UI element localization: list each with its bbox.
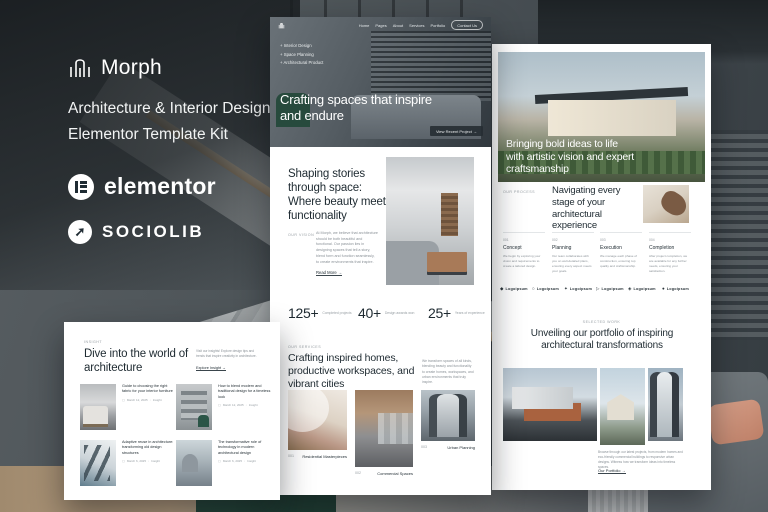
blog-section-mockup: Insight Dive into the world of architect… [64, 322, 280, 500]
vision-image-interior [386, 157, 474, 285]
kit-subtitle-line2: Elementor Template Kit [68, 122, 270, 148]
house-body-shape [548, 100, 676, 136]
portfolio-image-modern-house [503, 368, 597, 441]
nav-item-portfolio[interactable]: Portfolio [431, 23, 446, 28]
logoipsum-icon: ○ [532, 286, 535, 291]
stat-value: 25+ [428, 305, 451, 321]
services-label: Our Services [288, 345, 321, 349]
portfolio-image-tower [648, 368, 683, 441]
stat-experience: 25+ Years of experience [428, 305, 485, 321]
service-number: 001 [288, 454, 294, 459]
blog-post-card[interactable]: Guide to choosing the right fabric for y… [80, 384, 176, 430]
step-body: We begin by exploring your vision and re… [503, 254, 545, 269]
logoipsum-icon: ● [662, 286, 665, 291]
tower-shape [657, 372, 672, 436]
salmon-cushion [707, 399, 764, 446]
post-image-bedroom [80, 384, 116, 430]
service-name: Commercial Spaces [377, 471, 413, 476]
portfolio-heading: Unveiling our portfolio of inspiring arc… [526, 328, 678, 353]
nav-item-pages[interactable]: Pages [375, 23, 386, 28]
template-kit-cover: Morph Architecture & Interior Design Ele… [0, 0, 768, 512]
skyscraper-shape [437, 394, 459, 437]
blog-post-card[interactable]: How to blend modern and traditional desi… [176, 384, 272, 430]
stat-label: Design awards won [385, 311, 415, 316]
post-meta: ▢ March 6, 2025 ◦ Insight [218, 459, 272, 463]
portfolio-body: Browse through our latest projects, from… [598, 450, 684, 470]
post-image-building [80, 440, 116, 486]
vision-label: Our Vision [288, 233, 314, 237]
tag-icon: ◦ [244, 459, 245, 463]
tag-icon: ◦ [148, 459, 149, 463]
logoipsum-icon: ◈ [628, 286, 631, 292]
logoipsum-icon: ▷ [596, 286, 599, 292]
stat-awards: 40+ Design awards won [358, 305, 415, 321]
tag-icon: ◦ [246, 403, 247, 407]
branding-block: Morph Architecture & Interior Design Ele… [68, 56, 270, 244]
stat-label: Years of experience [455, 311, 485, 316]
post-meta: ▢ March 12, 2025 ◦ Insight [218, 403, 272, 407]
process-label: Our Process [503, 190, 535, 194]
process-step-concept: 001 Concept We begin by exploring your v… [503, 238, 545, 269]
service-image-urban [421, 390, 475, 441]
post-image-domes [176, 440, 212, 486]
nav-contact-button[interactable]: Contact Us [451, 20, 483, 30]
nav-item-services[interactable]: Services [409, 23, 424, 28]
portfolio-image-suburban-house [600, 368, 645, 445]
kit-subtitle-line1: Architecture & Interior Design [68, 96, 270, 122]
service-number: 002 [355, 471, 361, 476]
hero-blinds-texture [371, 31, 491, 101]
about-page-mockup: Bringing bold ideas to life with artisti… [492, 44, 711, 490]
vision-body: At Morph, we believe that architecture s… [316, 231, 378, 265]
service-name: Urban Planning [447, 445, 475, 450]
tag-icon: ◦ [150, 398, 151, 402]
feature-item: + Architectural Product [280, 60, 323, 65]
client-logo: ▷ Logoipsum [596, 286, 624, 292]
bed-shape [83, 406, 108, 424]
post-title: Guide to choosing the right fabric for y… [122, 384, 176, 395]
blog-post-card[interactable]: The transformative role of technology in… [176, 440, 272, 486]
step-number: 001 [503, 238, 545, 242]
vision-read-more-link[interactable]: Read More → [316, 270, 342, 276]
stat-value: 125+ [288, 305, 318, 321]
view-recent-project-button[interactable]: View Recent Project → [430, 126, 483, 136]
blog-heading: Dive into the world of architecture [84, 347, 194, 375]
portfolio-link[interactable]: Our Portfolio → [598, 468, 626, 474]
stat-projects: 125+ Completed projects [288, 305, 352, 321]
nav-item-about[interactable]: About [393, 23, 403, 28]
post-title: The transformative role of technology in… [218, 440, 272, 456]
step-name: Execution [600, 245, 642, 251]
step-name: Concept [503, 245, 545, 251]
step-number: 003 [600, 238, 642, 242]
service-card-urban[interactable]: 003 Urban Planning [421, 390, 475, 450]
blog-label: Insight [84, 340, 102, 344]
wine-rack-shape [441, 193, 459, 237]
suburban-house-shape [607, 394, 634, 420]
elementor-icon [68, 174, 94, 200]
process-step-planning: 002 Planning Our team collaborates with … [552, 238, 594, 274]
service-image-residential [288, 390, 347, 450]
logoipsum-icon: ◆ [500, 286, 503, 292]
step-name: Completion [649, 245, 691, 251]
client-logo: ✦ Logoipsum [564, 286, 592, 292]
service-number: 003 [421, 445, 427, 450]
home-page-mockup: Home Pages About Services Portfolio Cont… [270, 17, 491, 495]
about-hero-image-house: Bringing bold ideas to life with artisti… [498, 52, 705, 182]
sociolib-logo: ➚ SOCIOLIB [68, 220, 270, 244]
site-header: Home Pages About Services Portfolio Cont… [270, 17, 491, 33]
about-hero-heading: Bringing bold ideas to life with artisti… [506, 138, 636, 176]
modern-house-shape [512, 387, 572, 409]
calendar-icon: ▢ [122, 459, 125, 463]
service-image-commercial [355, 390, 413, 467]
client-logo: ● Logoipsum [662, 286, 689, 291]
blog-body: Visit our insights! Explore design tips … [196, 349, 260, 359]
process-step-execution: 003 Execution We manage each phase of co… [600, 238, 642, 269]
calendar-icon: ▢ [218, 459, 221, 463]
calendar-icon: ▢ [218, 403, 221, 407]
sociolib-wordmark: SOCIOLIB [102, 222, 204, 242]
vision-heading: Shaping stories through space: Where bea… [288, 167, 394, 223]
nav-item-home[interactable]: Home [359, 23, 370, 28]
step-body: Our team collaborates with you on well-d… [552, 254, 594, 274]
client-logo: ◈ Logoipsum [628, 286, 656, 292]
logoipsum-icon: ✦ [564, 286, 568, 292]
services-heading: Crafting inspired homes, productive work… [288, 352, 416, 390]
hand-shape [657, 187, 689, 219]
portfolio-label: Selected Work [492, 320, 711, 324]
step-name: Planning [552, 245, 594, 251]
post-meta: ▢ March 12, 2025 ◦ Insight [122, 398, 176, 402]
dome-shape [182, 454, 198, 472]
client-logo: ◆ Logoipsum [500, 286, 528, 292]
step-body: We manage each phase of construction, en… [600, 254, 642, 269]
elementor-logo: elementor [68, 173, 270, 200]
office-glass-shape [378, 413, 413, 444]
feature-item: + Interior Design [280, 43, 323, 48]
client-logo: ○ Logoipsum [532, 286, 559, 291]
process-step-completion: 004 Completion After project completion,… [649, 238, 691, 274]
hero-feature-list: + Interior Design + Space Planning + Arc… [280, 43, 323, 69]
step-number: 002 [552, 238, 594, 242]
post-meta: ▢ March 6, 2025 ◦ Insight [122, 459, 176, 463]
feature-item: + Space Planning [280, 52, 323, 57]
explore-insight-link[interactable]: Explore Insight → [196, 366, 226, 371]
stat-value: 40+ [358, 305, 381, 321]
home-hero: Home Pages About Services Portfolio Cont… [270, 17, 491, 147]
sociolib-arrow-icon: ➚ [68, 220, 92, 244]
blog-post-card[interactable]: Adaptive reuse in architecture: transfor… [80, 440, 176, 486]
calendar-icon: ▢ [122, 398, 125, 402]
kit-name: Morph [101, 56, 162, 80]
elementor-wordmark: elementor [104, 173, 216, 200]
post-title: How to blend modern and traditional desi… [218, 384, 272, 400]
services-body: We transform spaces of all kinds, blendi… [422, 359, 474, 385]
service-name: Residential Masterpieces [302, 454, 347, 459]
site-logo-icon [278, 22, 285, 29]
step-number: 004 [649, 238, 691, 242]
hero-heading: Crafting spaces that inspire and endure [280, 92, 440, 123]
green-chair-shape [198, 415, 209, 427]
windows-shape [84, 445, 109, 482]
stat-label: Completed projects [322, 311, 352, 316]
step-body: After project completion, we are availab… [649, 254, 691, 274]
post-image-staircase [176, 384, 212, 430]
coffee-table-shape [427, 252, 467, 272]
morph-logo-icon [68, 56, 92, 80]
service-card-commercial[interactable]: 002 Commercial Spaces [355, 390, 413, 476]
post-title: Adaptive reuse in architecture: transfor… [122, 440, 176, 456]
process-image-drafting [643, 185, 689, 223]
site-nav: Home Pages About Services Portfolio Cont… [359, 20, 483, 30]
process-heading: Navigating every stage of your architect… [552, 185, 638, 232]
service-card-residential[interactable]: 001 Residential Masterpieces [288, 390, 347, 459]
interior-curve-shape [288, 390, 329, 432]
